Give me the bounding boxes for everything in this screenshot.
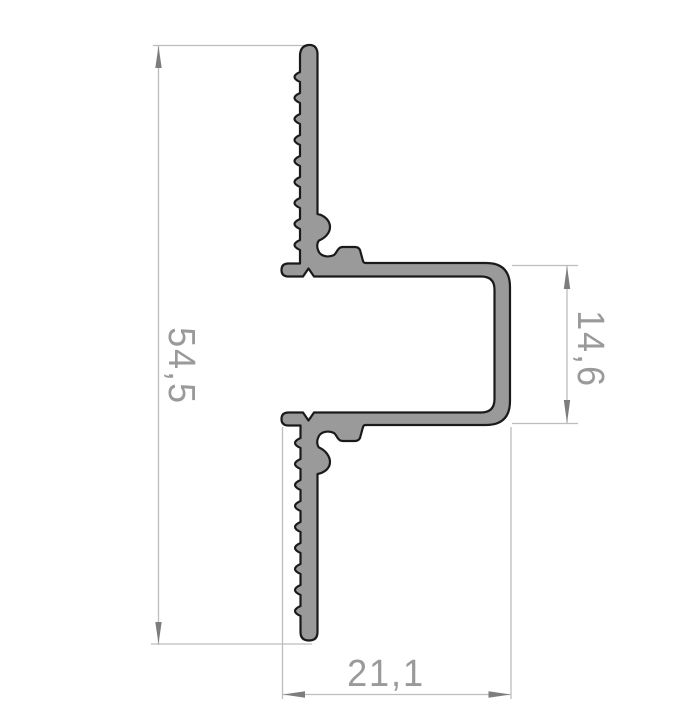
arrow-up-icon xyxy=(155,46,161,68)
dim-channel-label: 14,6 xyxy=(571,310,609,388)
arrow-left-icon xyxy=(283,691,305,697)
extension-lines xyxy=(151,46,578,700)
dim-height-label: 54,5 xyxy=(162,327,200,405)
arrow-right-icon xyxy=(489,691,511,697)
arrow-down-icon xyxy=(564,400,570,423)
arrow-down-icon xyxy=(155,622,161,644)
arrow-up-icon xyxy=(564,266,570,289)
dim-width-label: 21,1 xyxy=(347,655,425,693)
technical-drawing-canvas: 54,5 14,6 21,1 xyxy=(0,0,686,701)
profile-cross-section xyxy=(282,45,511,641)
